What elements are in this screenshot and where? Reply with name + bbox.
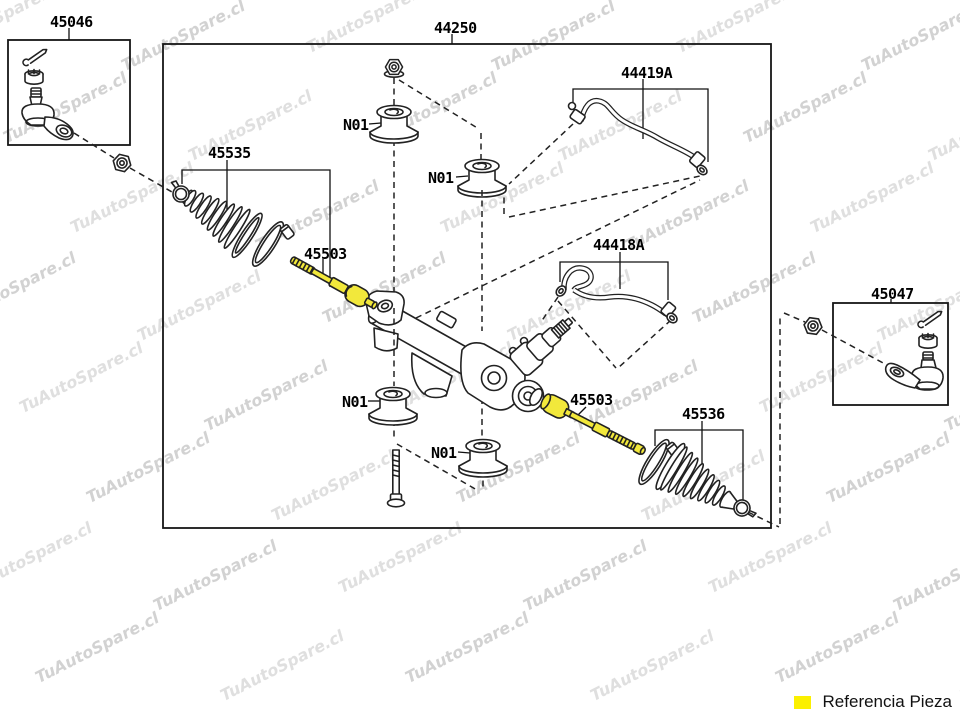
leader-lines xyxy=(69,28,891,500)
pressure-tube-upper-drawing xyxy=(569,101,709,177)
parts-diagram-canvas: TuAutoSpare.clTuAutoSpare.clTuAutoSpare.… xyxy=(0,0,960,720)
part-label-assembly: 44250 xyxy=(434,19,477,37)
flange-nut-icon xyxy=(385,60,404,78)
part-label-boot-left: 45535 xyxy=(208,144,251,162)
ball-stud xyxy=(921,352,936,368)
cotter-pin-icon xyxy=(22,46,48,67)
grommet-drawing xyxy=(459,440,507,478)
castle-nut-icon xyxy=(919,334,937,349)
pressure-tube-lower-drawing xyxy=(554,268,679,325)
part-label-tie-rod-end-right: 45047 xyxy=(871,285,914,303)
part-label-grommet-3: N01 xyxy=(342,393,368,411)
tie-rod-end-right-drawing xyxy=(886,308,943,390)
hex-nut-icon xyxy=(803,317,823,335)
boot-left-drawing xyxy=(172,174,298,275)
part-label-boot-right: 45536 xyxy=(682,405,725,423)
legend: Referencia Pieza xyxy=(794,692,952,712)
part-label-grommet-4: N01 xyxy=(431,444,457,462)
part-label-tube-upper: 44419A xyxy=(621,64,672,82)
part-label-grommet-1: N01 xyxy=(343,116,369,134)
part-label-tie-rod-end-left: 45046 xyxy=(50,13,93,31)
mounting-bolt-drawing xyxy=(388,450,405,507)
part-label-grommet-2: N01 xyxy=(428,169,454,187)
tie-rod-end-left-drawing xyxy=(22,46,74,140)
control-valve-drawing xyxy=(508,310,580,377)
legend-highlight-swatch xyxy=(794,696,811,709)
diagram-line-art xyxy=(0,0,960,720)
grommet-drawing xyxy=(369,388,417,426)
grommet-drawing xyxy=(370,106,418,144)
hex-nut-icon xyxy=(111,153,132,172)
castle-nut-icon xyxy=(25,70,43,85)
boot-right-drawing xyxy=(634,435,756,528)
legend-label: Referencia Pieza xyxy=(823,692,952,712)
part-label-tube-lower: 44418A xyxy=(593,236,644,254)
part-label-rack-end-right: 45503 xyxy=(570,391,613,409)
cotter-pin-icon xyxy=(917,308,943,329)
boot-clamp-small-icon xyxy=(172,181,190,202)
part-label-rack-end-left: 45503 xyxy=(304,245,347,263)
